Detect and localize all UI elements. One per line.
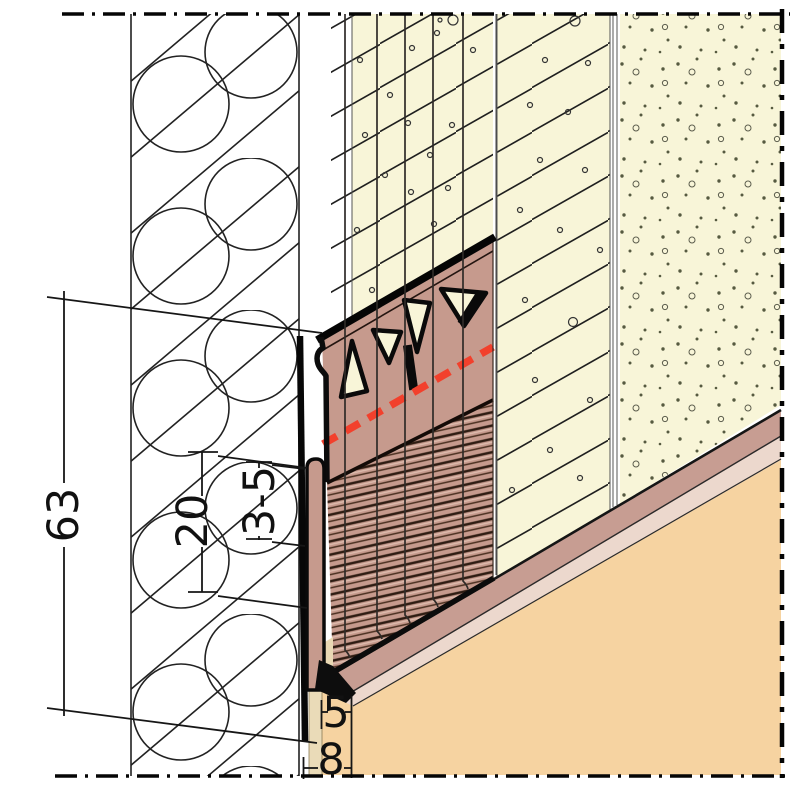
dim-label-20: 20 — [168, 494, 218, 549]
profile-back-plate — [300, 336, 305, 742]
drawing-svg: 63 20 3-5 5 8 — [0, 0, 800, 800]
dim-label-3-5: 3-5 — [235, 466, 285, 536]
insulation-section — [131, 14, 299, 776]
drip-lip — [307, 459, 324, 690]
dim-label-5: 5 — [322, 688, 349, 738]
base-coat-band-right — [497, 14, 617, 576]
insulation-hatch — [131, 14, 299, 776]
technical-drawing-base-profile-detail: 63 20 3-5 5 8 — [0, 0, 800, 800]
dim-label-63: 63 — [39, 488, 89, 543]
